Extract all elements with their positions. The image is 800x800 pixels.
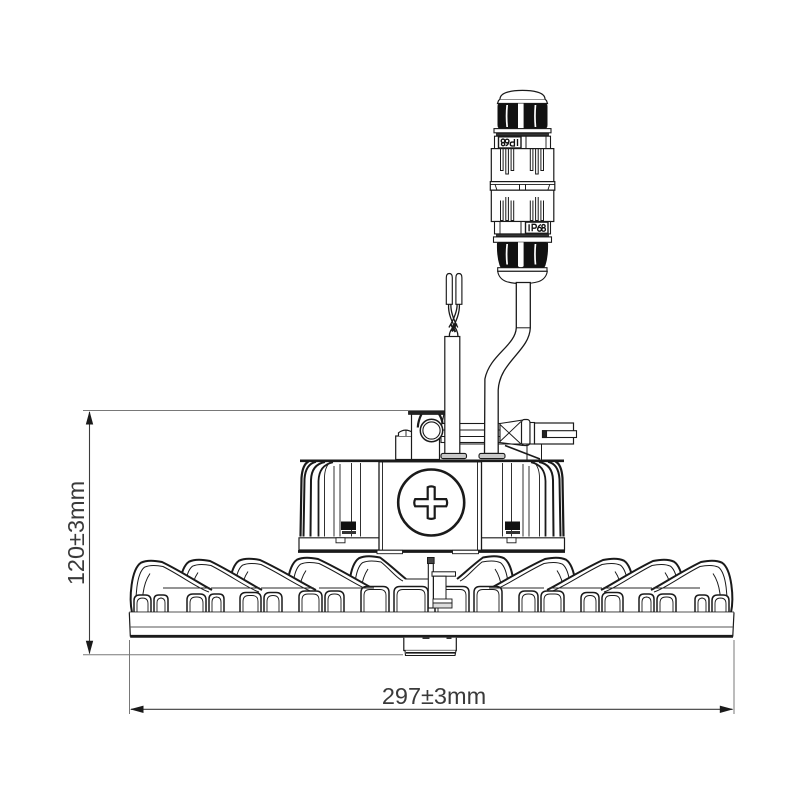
svg-text:120±3mm: 120±3mm	[63, 481, 89, 585]
svg-text:297±3mm: 297±3mm	[382, 683, 486, 709]
